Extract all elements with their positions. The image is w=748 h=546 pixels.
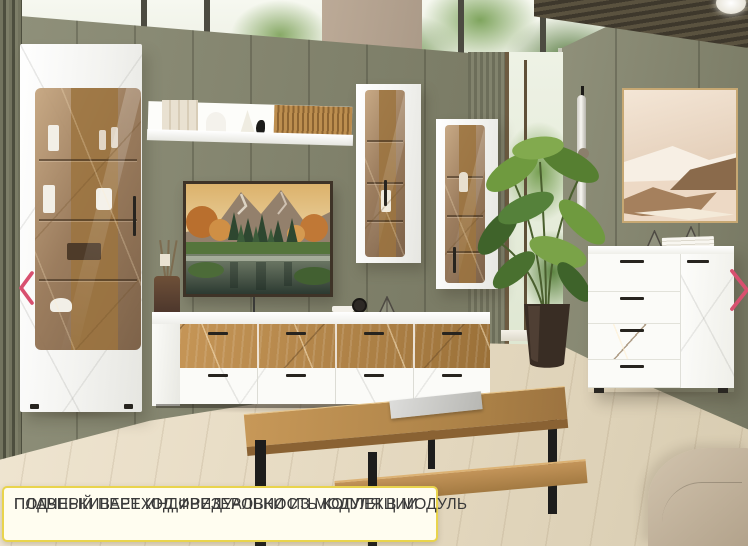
abstract-wall-art: [622, 88, 738, 223]
chevron-left-icon: [16, 270, 38, 306]
drawer-handle: [442, 374, 462, 377]
table-top: [244, 386, 568, 456]
chevron-right-icon: [726, 268, 748, 312]
chest-drawer: [588, 360, 680, 388]
tall-display-cabinet: [20, 44, 142, 412]
decor-clock: [352, 298, 367, 313]
carousel-next-button[interactable]: [712, 244, 740, 292]
chest-drawer-wood: [588, 324, 680, 360]
vase-label: [160, 254, 170, 266]
drawer-handle: [286, 332, 306, 335]
left-slat-wall: [0, 0, 22, 462]
cabinet-foot: [30, 404, 39, 409]
milling-pattern: [35, 88, 141, 350]
furniture-catalog-slide: ПЛАВНЫЙ ПЕРЕХОД ФРЕЗЕРОВКИ ИЗ МОДУЛЯ В М…: [0, 0, 748, 546]
cabinet-foot: [124, 404, 133, 409]
drawer-handle: [620, 297, 644, 300]
door-handle: [384, 180, 387, 206]
tv-stand-side: [152, 324, 180, 406]
drawer-handle: [620, 329, 644, 332]
drawer-divider: [335, 324, 337, 368]
drawer-handle: [620, 260, 644, 263]
drawer-handle: [364, 374, 384, 377]
drawer-handle: [620, 365, 644, 368]
carousel-prev-button[interactable]: [2, 246, 30, 294]
cabinet-glass-door: [365, 90, 405, 257]
chest-drawer: [588, 292, 680, 324]
door-handle: [687, 260, 709, 263]
sofa-seam: [662, 482, 742, 532]
door-handle: [133, 196, 136, 236]
tv-landscape-picture: [183, 181, 333, 297]
cabinet-glass-door: [35, 88, 141, 350]
wall-cabinet-left: [356, 84, 421, 263]
drawer-divider: [257, 324, 259, 368]
drawer-handle: [442, 332, 462, 335]
forest-landscape: [186, 184, 330, 294]
tv-stand-wood-drawers: [180, 324, 490, 368]
door-handle: [453, 247, 456, 273]
chest-foot: [718, 388, 728, 393]
drawer-handle: [208, 332, 228, 335]
drawer-handle: [208, 374, 228, 377]
caption-box: ПЛАВНЫЙ ПЕРЕХОД ФРЕЗЕРОВКИ ИЗ МОДУЛЯ В М…: [2, 486, 438, 542]
milling-pattern: [365, 90, 405, 257]
drawer-handle: [364, 332, 384, 335]
drawer-handle: [286, 374, 306, 377]
drawer-divider: [413, 324, 415, 368]
caption-line-2: ПОДЧЕРКИВАЕТ ИНДИВИДУАЛЬНОСТЬ КОЛЛЕКЦИИ: [14, 494, 418, 515]
tv-stand-top: [152, 312, 490, 324]
chest-drawer: [588, 254, 680, 292]
